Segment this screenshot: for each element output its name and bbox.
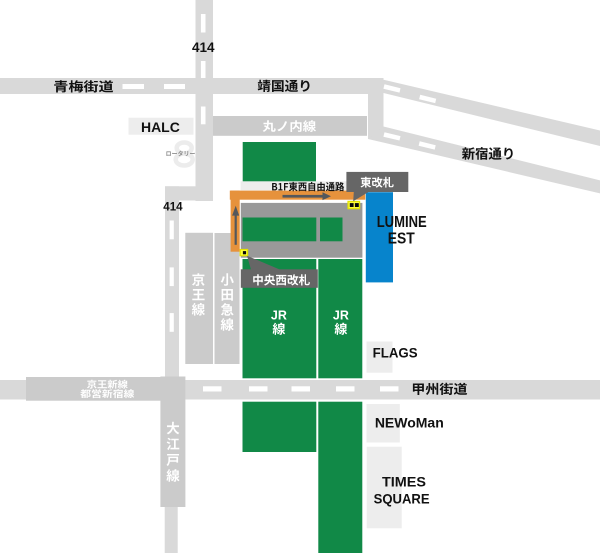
svg-text:EST: EST <box>388 230 415 247</box>
svg-text:SQUARE: SQUARE <box>374 490 430 506</box>
svg-text:FLAGS: FLAGS <box>373 345 418 361</box>
svg-text:JR: JR <box>271 309 287 323</box>
svg-text:414: 414 <box>163 201 183 213</box>
svg-text:TIMES: TIMES <box>382 473 426 489</box>
svg-text:HALC: HALC <box>141 119 180 135</box>
svg-text:NEWoMan: NEWoMan <box>375 414 444 430</box>
svg-text:414: 414 <box>192 40 215 55</box>
svg-text:LUMINE: LUMINE <box>377 214 427 231</box>
svg-text:JR: JR <box>333 309 349 323</box>
